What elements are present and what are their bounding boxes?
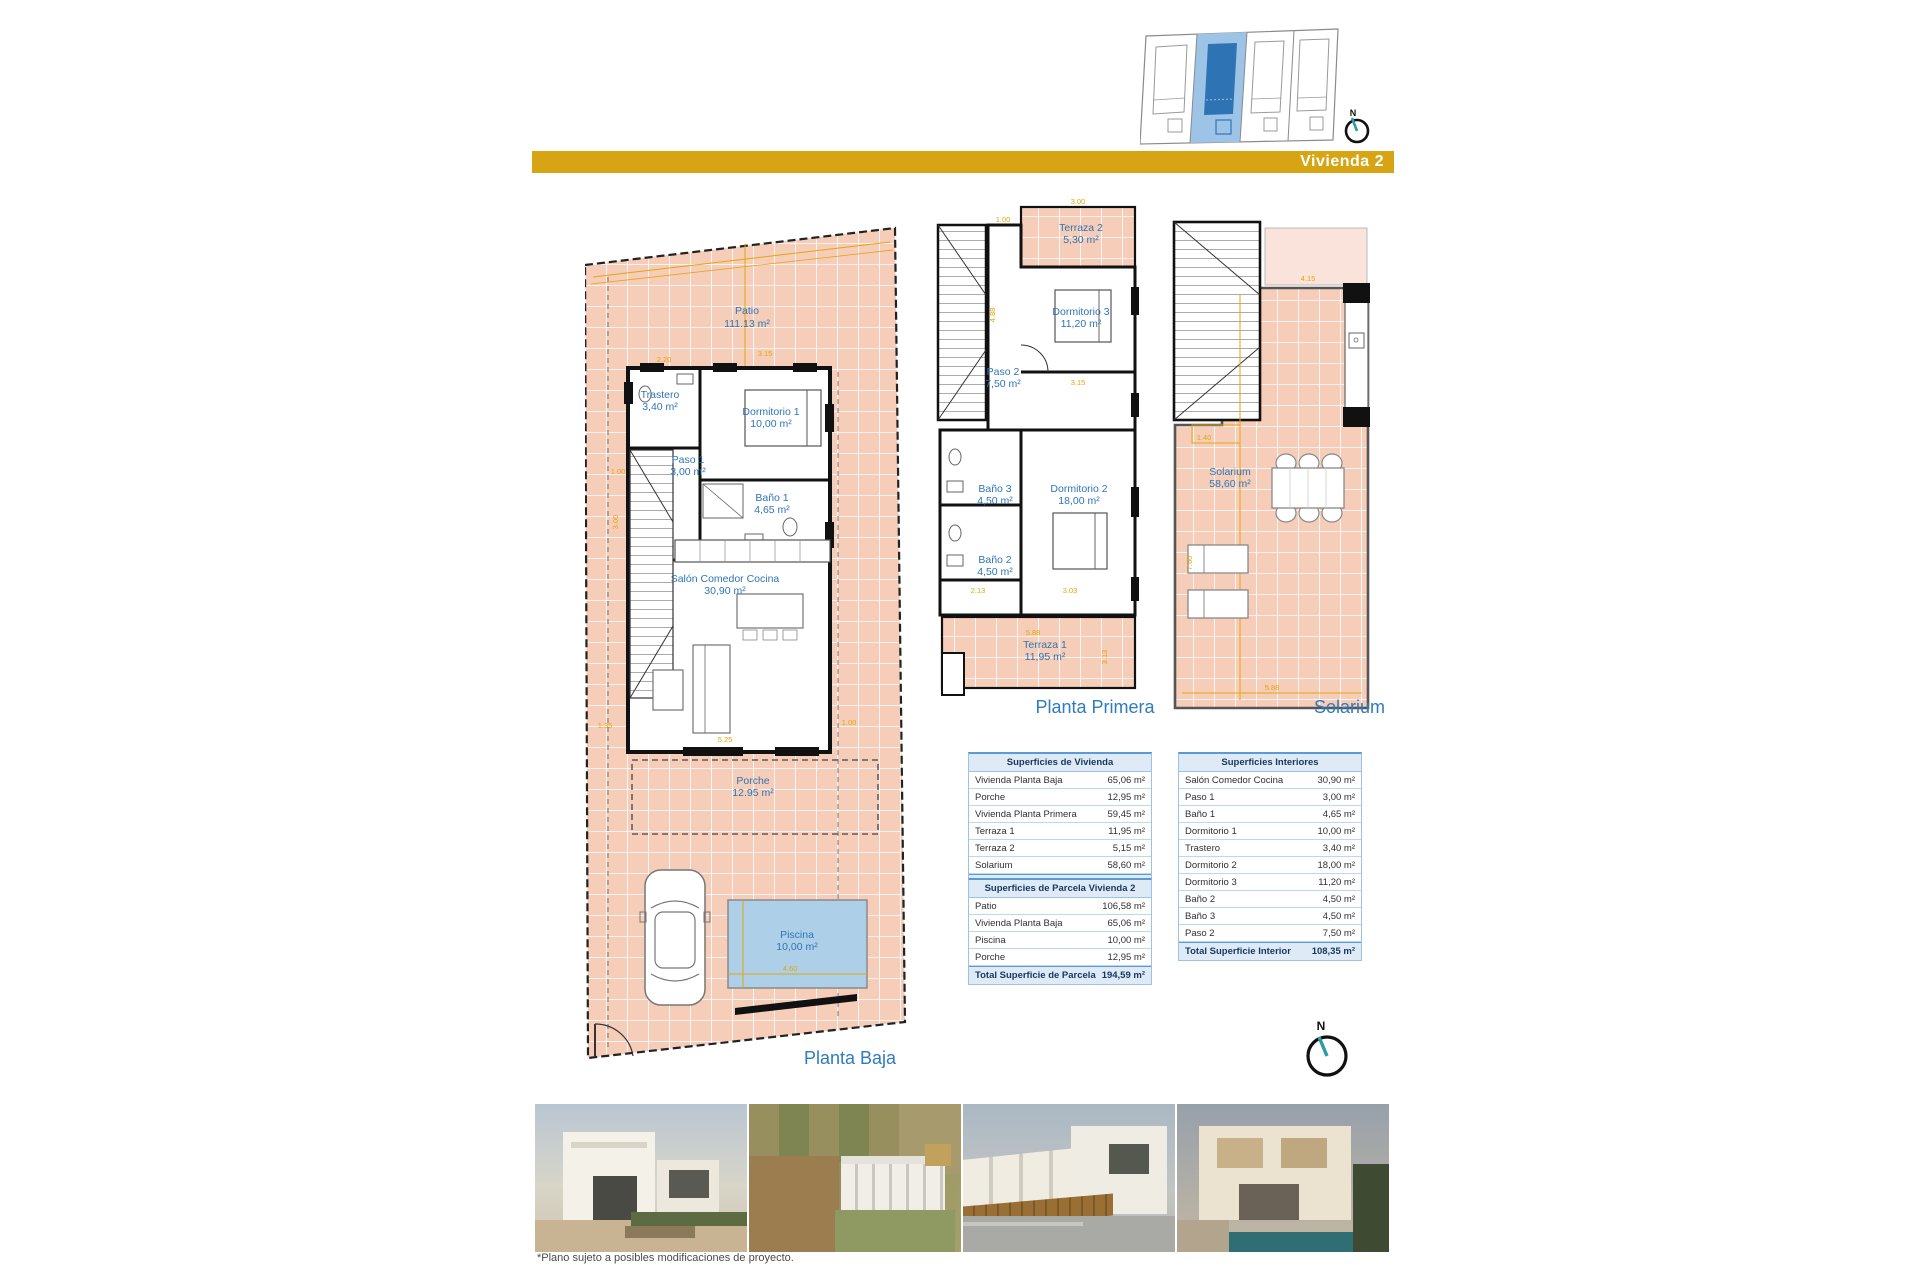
plan-sheet: N Vivienda 2: [0, 0, 1920, 1280]
room-area: 18,00 m²: [1058, 495, 1100, 507]
north-letter: N: [1317, 1019, 1326, 1033]
room-area: 12.95 m²: [732, 787, 774, 799]
table-superficies-parcela: Superficies de Parcela Vivienda 2 Patio1…: [968, 878, 1152, 985]
plan-caption-planta-baja: Planta Baja: [785, 1048, 915, 1069]
room-area: 5,30 m²: [1063, 234, 1099, 246]
dim: 3.15: [1071, 378, 1086, 387]
pergola-zone: [1265, 228, 1367, 285]
dim: 5.88: [1026, 628, 1041, 637]
plan-caption-solarium: Solarium: [1275, 697, 1385, 718]
car: [640, 870, 710, 1005]
dim: 5.88: [1265, 683, 1280, 692]
dim: 3.00: [611, 515, 620, 530]
bed: [1053, 513, 1107, 569]
table-row: Dormitorio 110,00 m²: [1179, 823, 1361, 840]
room-label: Terraza 1: [1023, 639, 1067, 651]
dim: 3.03: [1063, 586, 1078, 595]
table-row: Porche12,95 m²: [969, 949, 1151, 966]
table-row: Terraza 25,15 m²: [969, 840, 1151, 857]
floorplan-planta-primera: Terraza 2 5,30 m² Dormitorio 3 11,20 m² …: [933, 195, 1168, 725]
photo-villa-render-front: [535, 1104, 747, 1252]
dim: 3.15: [758, 349, 773, 358]
room-area: 58,60 m²: [1209, 478, 1251, 490]
room-area: 11,95 m²: [1025, 651, 1066, 663]
north-compass-bottom: N: [1296, 1012, 1360, 1084]
table-row: Vivienda Planta Primera59,45 m²: [969, 806, 1151, 823]
table-row: Piscina10,00 m²: [969, 932, 1151, 949]
table-row: Terraza 111,95 m²: [969, 823, 1151, 840]
stairs: [1174, 222, 1260, 420]
dining-set: [1272, 454, 1344, 522]
plan-caption-planta-primera: Planta Primera: [1015, 697, 1175, 718]
room-area: 4,65 m²: [754, 504, 790, 516]
stairs: [938, 225, 986, 420]
table-row: Salón Comedor Cocina30,90 m²: [1179, 772, 1361, 789]
table-row: Paso 27,50 m²: [1179, 925, 1361, 942]
site-key-plan: [1140, 22, 1345, 147]
terrace1-planter: [942, 653, 964, 695]
dim: 2.20: [657, 355, 672, 364]
table-total-row: Total Superficie de Parcela194,59 m²: [969, 966, 1151, 984]
table-row: Porche12,95 m²: [969, 789, 1151, 806]
table-superficies-interiores: Superficies Interiores Salón Comedor Coc…: [1178, 752, 1362, 961]
table-title: Superficies de Vivienda: [969, 754, 1151, 772]
page-title: Vivienda 2: [1300, 153, 1384, 171]
floorplan-planta-baja: Patio 111.13 m² Trastero 3,40 m² Dormito…: [585, 222, 907, 1062]
dining-table: [737, 594, 803, 628]
room-label: Paso 2: [987, 366, 1020, 378]
dim: 5.25: [718, 735, 733, 744]
table-row: Trastero3,40 m²: [1179, 840, 1361, 857]
dim: 2.13: [971, 586, 986, 595]
room-label: Dormitorio 2: [1050, 483, 1107, 495]
dim: 1.35: [598, 721, 613, 730]
table-title: Superficies de Parcela Vivienda 2: [969, 880, 1151, 898]
disclaimer-text: *Plano sujeto a posibles modificaciones …: [537, 1252, 794, 1264]
dim: 1.00: [996, 215, 1011, 224]
room-label: Patio: [735, 305, 759, 317]
room-area: 111.13 m²: [724, 318, 770, 330]
room-label: Salón Comedor Cocina: [671, 573, 780, 585]
table-row: Patio106,58 m²: [969, 898, 1151, 915]
room-area: 30,90 m²: [704, 585, 746, 597]
sofa: [693, 645, 730, 733]
room-label: Paso 1: [672, 454, 705, 466]
table-row: Baño 34,50 m²: [1179, 908, 1361, 925]
table-row: Vivienda Planta Baja65,06 m²: [969, 772, 1151, 789]
dim: 7.60: [1185, 556, 1194, 571]
table-title: Superficies Interiores: [1179, 754, 1361, 772]
room-area: 4,50 m²: [977, 495, 1013, 507]
north-letter: N: [1350, 108, 1357, 118]
title-bar: Vivienda 2: [532, 151, 1394, 173]
room-label: Baño 3: [978, 483, 1011, 495]
photo-street-render: [963, 1104, 1175, 1252]
table-superficies-vivienda: Superficies de Vivienda Vivienda Planta …: [968, 752, 1152, 893]
dim: 4.60: [783, 964, 798, 973]
table-row: Paso 13,00 m²: [1179, 789, 1361, 806]
table-row: Vivienda Planta Baja65,06 m²: [969, 915, 1151, 932]
room-label: Porche: [736, 775, 769, 787]
room-area: 3,00 m²: [670, 466, 706, 478]
room-area: 3,40 m²: [642, 401, 678, 413]
counter: [1345, 290, 1368, 425]
room-area: 10,00 m²: [750, 418, 792, 430]
photo-aerial-render: [749, 1104, 961, 1252]
room-label: Dormitorio 1: [742, 406, 799, 418]
room-label: Terraza 2: [1059, 222, 1103, 234]
table-row: Baño 14,65 m²: [1179, 806, 1361, 823]
room-area: 11,20 m²: [1061, 318, 1102, 330]
dim: 3.13: [1100, 650, 1109, 665]
table-row: Solarium58,60 m²: [969, 857, 1151, 874]
dim: 1.00: [842, 718, 857, 727]
dim: 3.00: [1071, 197, 1086, 206]
kitchen-counter: [675, 540, 830, 562]
highlighted-house-footprint: [1204, 43, 1237, 115]
compass-needle: [1319, 1037, 1327, 1056]
stairs: [630, 450, 673, 698]
table-row: Dormitorio 311,20 m²: [1179, 874, 1361, 891]
room-label: Solarium: [1209, 466, 1251, 478]
room-label: Trastero: [641, 389, 680, 401]
dim: 1.00: [611, 467, 626, 476]
north-compass-top: N: [1338, 104, 1378, 148]
table-row: Dormitorio 218,00 m²: [1179, 857, 1361, 874]
table-total-row: Total Superficie Interior108,35 m²: [1179, 942, 1361, 960]
room-area: 7,50 m²: [985, 378, 1021, 390]
room-label: Baño 1: [755, 492, 788, 504]
photo-villa-render-dusk: [1177, 1104, 1389, 1252]
room-label: Piscina: [780, 929, 814, 941]
room-label: Dormitorio 3: [1052, 306, 1109, 318]
dim: 4.88: [988, 308, 997, 323]
room-area: 10,00 m²: [776, 941, 818, 953]
dim: 4.15: [1301, 274, 1316, 283]
room-label: Baño 2: [978, 554, 1011, 566]
floorplan-solarium: Solarium 58,60 m² 4.15 1.40 7.60 5.88: [1172, 195, 1404, 720]
dim: 1.40: [1197, 433, 1212, 442]
room-area: 4,50 m²: [977, 566, 1013, 578]
table-row: Baño 24,50 m²: [1179, 891, 1361, 908]
armchair: [653, 670, 683, 710]
